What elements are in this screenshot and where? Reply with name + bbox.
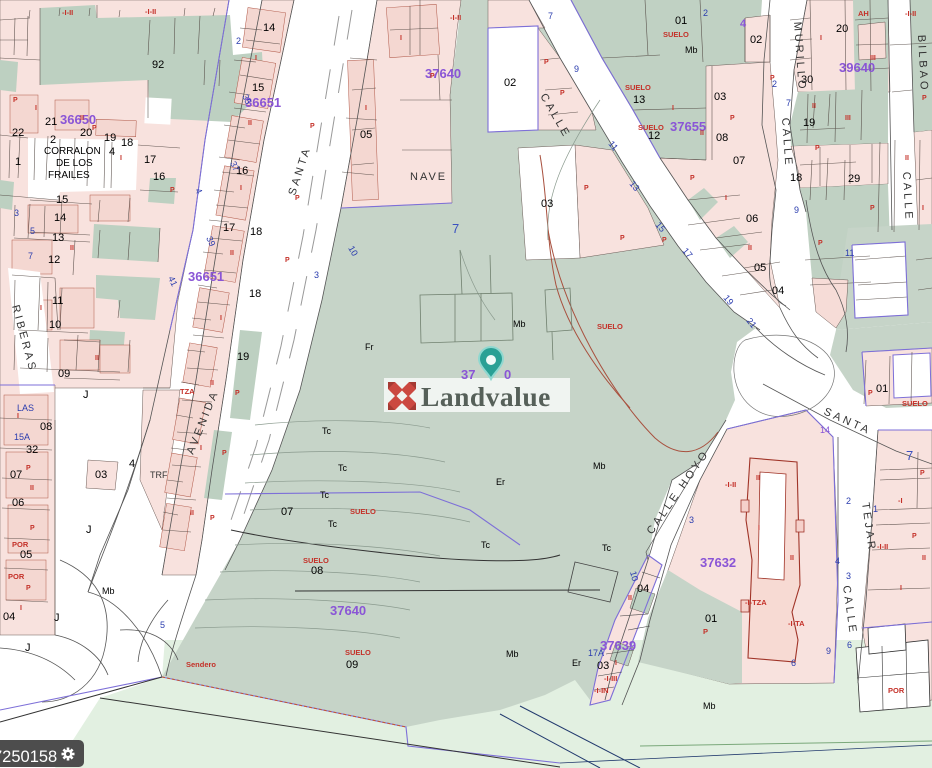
svg-text:7: 7 (906, 448, 913, 463)
svg-text:7: 7 (452, 221, 459, 236)
svg-text:04: 04 (772, 285, 784, 297)
svg-text:6: 6 (847, 640, 852, 650)
svg-text:Tc: Tc (322, 426, 332, 436)
svg-text:05: 05 (360, 129, 372, 141)
svg-text:Tc: Tc (481, 540, 491, 550)
svg-text:7250158: 7250158 (0, 748, 57, 766)
svg-text:17: 17 (223, 222, 235, 234)
svg-text:10: 10 (49, 319, 61, 331)
svg-text:P: P (922, 95, 927, 102)
svg-text:I: I (200, 445, 202, 452)
svg-text:II: II (248, 120, 252, 127)
svg-text:07: 07 (10, 469, 22, 481)
svg-text:P: P (912, 533, 917, 540)
svg-text:I: I (20, 605, 22, 612)
svg-text:II: II (756, 475, 760, 482)
svg-text:CORRALON: CORRALON (44, 146, 101, 157)
svg-text:Tc: Tc (338, 463, 348, 473)
svg-text:I: I (240, 185, 242, 192)
svg-text:11: 11 (845, 248, 854, 258)
svg-text:P: P (26, 465, 31, 472)
svg-text:NAVE: NAVE (410, 171, 447, 183)
svg-text:AH: AH (858, 9, 869, 18)
svg-text:-I-II: -I-II (877, 542, 888, 551)
svg-text:I: I (220, 315, 222, 322)
svg-text:01: 01 (876, 383, 888, 395)
svg-text:4: 4 (835, 556, 840, 566)
svg-text:5: 5 (160, 620, 165, 630)
svg-text:SUELO: SUELO (350, 507, 376, 516)
svg-text:37: 37 (461, 367, 475, 382)
svg-text:-I-III: -I-III (604, 674, 617, 683)
svg-text:P: P (690, 175, 695, 182)
svg-text:Tc: Tc (320, 490, 330, 500)
svg-text:02: 02 (504, 77, 516, 89)
svg-text:Mb: Mb (102, 586, 115, 596)
svg-text:17A: 17A (588, 648, 604, 658)
svg-text:05: 05 (754, 262, 766, 274)
svg-text:Tc: Tc (602, 543, 612, 553)
svg-text:SUELO: SUELO (303, 556, 329, 565)
svg-text:I: I (120, 155, 122, 162)
svg-text:SUELO: SUELO (345, 648, 371, 657)
svg-text:Tc: Tc (328, 519, 338, 529)
svg-text:POR: POR (888, 686, 905, 695)
svg-text:18: 18 (121, 137, 133, 149)
svg-text:4: 4 (109, 146, 115, 158)
svg-text:I: I (365, 105, 367, 112)
svg-text:37640: 37640 (330, 603, 366, 618)
svg-text:I: I (255, 55, 257, 62)
svg-text:P: P (815, 145, 820, 152)
svg-text:II: II (748, 245, 752, 252)
svg-text:P: P (210, 515, 215, 522)
svg-text:7: 7 (786, 98, 791, 108)
svg-text:SUELO: SUELO (663, 30, 689, 39)
svg-text:III: III (845, 115, 851, 122)
svg-text:37639: 37639 (600, 638, 636, 653)
svg-text:22: 22 (12, 127, 24, 139)
svg-text:37632: 37632 (700, 555, 736, 570)
svg-text:03: 03 (541, 198, 553, 210)
svg-text:19: 19 (803, 117, 815, 129)
svg-text:08: 08 (40, 421, 52, 433)
svg-text:19: 19 (104, 132, 116, 144)
svg-text:05: 05 (20, 549, 32, 561)
svg-text:DE LOS: DE LOS (56, 158, 93, 169)
svg-text:-I-II: -I-II (905, 9, 916, 18)
svg-text:36651: 36651 (188, 269, 224, 284)
svg-text:04: 04 (637, 583, 649, 595)
svg-text:II: II (790, 555, 794, 562)
svg-text:-I-II: -I-II (62, 8, 73, 17)
svg-text:II: II (922, 555, 926, 562)
svg-text:36650: 36650 (60, 112, 96, 127)
svg-text:3: 3 (689, 515, 694, 525)
svg-text:J: J (25, 642, 31, 654)
svg-text:29: 29 (848, 173, 860, 185)
svg-text:Mb: Mb (593, 461, 606, 471)
svg-text:I: I (615, 660, 617, 667)
svg-text:P: P (170, 187, 175, 194)
svg-text:Er: Er (496, 477, 505, 487)
svg-text:1: 1 (873, 504, 878, 514)
svg-text:18: 18 (790, 172, 802, 184)
svg-text:-I: -I (898, 496, 903, 505)
svg-text:03: 03 (95, 469, 107, 481)
svg-text:II: II (905, 155, 909, 162)
svg-text:I: I (922, 205, 924, 212)
svg-text:P: P (285, 257, 290, 264)
svg-text:I: I (725, 195, 727, 202)
svg-text:P: P (584, 185, 589, 192)
svg-text:14: 14 (820, 425, 830, 435)
svg-text:2: 2 (50, 134, 56, 146)
svg-text:I: I (758, 525, 760, 532)
svg-text:POR: POR (8, 572, 25, 581)
svg-text:Mb: Mb (685, 45, 698, 55)
svg-text:SUELO: SUELO (625, 83, 651, 92)
svg-text:P: P (818, 240, 823, 247)
svg-text:17: 17 (144, 154, 156, 166)
svg-text:2: 2 (703, 8, 708, 18)
svg-text:II: II (70, 245, 74, 252)
svg-text:08: 08 (311, 565, 323, 577)
svg-text:0: 0 (504, 367, 511, 382)
svg-text:4: 4 (740, 18, 747, 30)
svg-text:FRAILES: FRAILES (48, 170, 90, 181)
svg-text:SUELO: SUELO (597, 322, 623, 331)
svg-text:P: P (770, 75, 775, 82)
svg-text:06: 06 (746, 213, 758, 225)
svg-text:P: P (235, 390, 240, 397)
svg-text:07: 07 (281, 506, 293, 518)
svg-text:39640: 39640 (839, 60, 875, 75)
svg-text:3: 3 (314, 270, 319, 280)
svg-text:II: II (210, 380, 214, 387)
svg-text:II: II (30, 485, 34, 492)
svg-text:P: P (30, 525, 35, 532)
svg-text:03: 03 (714, 91, 726, 103)
svg-text:13: 13 (633, 94, 645, 106)
svg-text:04: 04 (3, 611, 15, 623)
svg-text:14: 14 (54, 212, 66, 224)
svg-text:4: 4 (129, 458, 135, 470)
svg-text:II: II (95, 355, 99, 362)
svg-text:5: 5 (30, 226, 35, 236)
svg-text:15A: 15A (14, 432, 30, 442)
svg-text:3: 3 (14, 208, 19, 218)
svg-text:08: 08 (716, 132, 728, 144)
svg-text:02: 02 (750, 34, 762, 46)
svg-text:TZA: TZA (180, 387, 195, 396)
svg-text:Sendero: Sendero (186, 660, 216, 669)
svg-text:13: 13 (52, 232, 64, 244)
svg-text:06: 06 (12, 497, 24, 509)
svg-text:P: P (430, 73, 435, 80)
svg-text:II: II (700, 130, 704, 137)
svg-text:01: 01 (675, 15, 687, 27)
svg-text:01: 01 (705, 613, 717, 625)
svg-text:J: J (54, 612, 60, 624)
svg-text:15: 15 (252, 82, 264, 94)
svg-text:7: 7 (548, 11, 553, 21)
svg-text:Landvalue: Landvalue (421, 381, 551, 412)
svg-text:Mb: Mb (703, 701, 716, 711)
svg-text:09: 09 (346, 659, 358, 671)
svg-text:07: 07 (733, 155, 745, 167)
svg-text:-I-TA: -I-TA (788, 619, 805, 628)
svg-text:II: II (190, 510, 194, 517)
svg-text:Fr: Fr (365, 342, 374, 352)
svg-text:15: 15 (56, 194, 68, 206)
svg-text:2: 2 (236, 36, 241, 46)
svg-text:09: 09 (58, 368, 70, 380)
svg-text:9: 9 (794, 205, 799, 215)
svg-text:18: 18 (249, 288, 261, 300)
svg-text:9: 9 (826, 646, 831, 656)
svg-text:21: 21 (45, 116, 57, 128)
svg-text:32: 32 (26, 444, 38, 456)
svg-text:P: P (26, 585, 31, 592)
svg-text:Mb: Mb (506, 649, 519, 659)
svg-text:20: 20 (836, 23, 848, 35)
svg-text:I: I (672, 105, 674, 112)
svg-text:SUELO: SUELO (902, 399, 928, 408)
svg-text:II: II (80, 115, 84, 122)
svg-text:-I-II: -I-II (145, 7, 156, 16)
svg-text:P: P (868, 390, 873, 397)
svg-text:TRF: TRF (150, 470, 168, 480)
svg-text:-I-II: -I-II (725, 480, 736, 489)
svg-text:I: I (35, 105, 37, 112)
svg-text:Mb: Mb (513, 319, 526, 329)
svg-text:12: 12 (648, 130, 660, 142)
svg-text:I: I (820, 35, 822, 42)
svg-text:P: P (92, 125, 97, 132)
svg-text:-I-TZA: -I-TZA (745, 598, 767, 607)
svg-text:P: P (295, 195, 300, 202)
svg-text:14: 14 (263, 22, 275, 34)
svg-text:Er: Er (572, 658, 581, 668)
svg-text:6: 6 (791, 658, 796, 668)
svg-text:11: 11 (52, 295, 63, 307)
svg-text:-I-IN: -I-IN (594, 686, 609, 695)
svg-text:20: 20 (80, 127, 92, 139)
svg-text:P: P (544, 59, 549, 66)
svg-text:92: 92 (152, 59, 164, 71)
svg-text:III: III (870, 55, 876, 62)
svg-text:P: P (13, 97, 18, 104)
svg-text:I: I (400, 35, 402, 42)
svg-text:18: 18 (250, 226, 262, 238)
svg-text:03: 03 (597, 660, 609, 672)
svg-text:P: P (222, 450, 227, 457)
svg-text:I: I (40, 305, 42, 312)
svg-text:I: I (900, 585, 902, 592)
svg-text:2: 2 (846, 496, 851, 506)
svg-text:P: P (920, 470, 925, 477)
svg-text:POR: POR (12, 540, 29, 549)
svg-text:P: P (730, 115, 735, 122)
svg-text:P: P (620, 235, 625, 242)
svg-text:II: II (230, 250, 234, 257)
svg-text:II: II (628, 595, 632, 602)
svg-text:3: 3 (846, 571, 851, 581)
svg-text:I: I (17, 413, 19, 420)
svg-text:7: 7 (28, 251, 33, 261)
svg-text:12: 12 (48, 254, 60, 266)
svg-text:P: P (560, 90, 565, 97)
svg-text:II: II (812, 103, 816, 110)
svg-text:P: P (870, 205, 875, 212)
svg-text:9: 9 (574, 64, 579, 74)
svg-text:P: P (662, 237, 667, 244)
svg-text:J: J (83, 389, 89, 401)
svg-text:P: P (310, 123, 315, 130)
svg-text:-I-II: -I-II (450, 13, 461, 22)
svg-text:19: 19 (237, 351, 249, 363)
svg-text:16: 16 (153, 171, 165, 183)
svg-text:LAS: LAS (17, 403, 34, 413)
svg-text:J: J (86, 524, 92, 536)
svg-text:P: P (703, 627, 708, 636)
svg-text:1: 1 (15, 156, 21, 168)
